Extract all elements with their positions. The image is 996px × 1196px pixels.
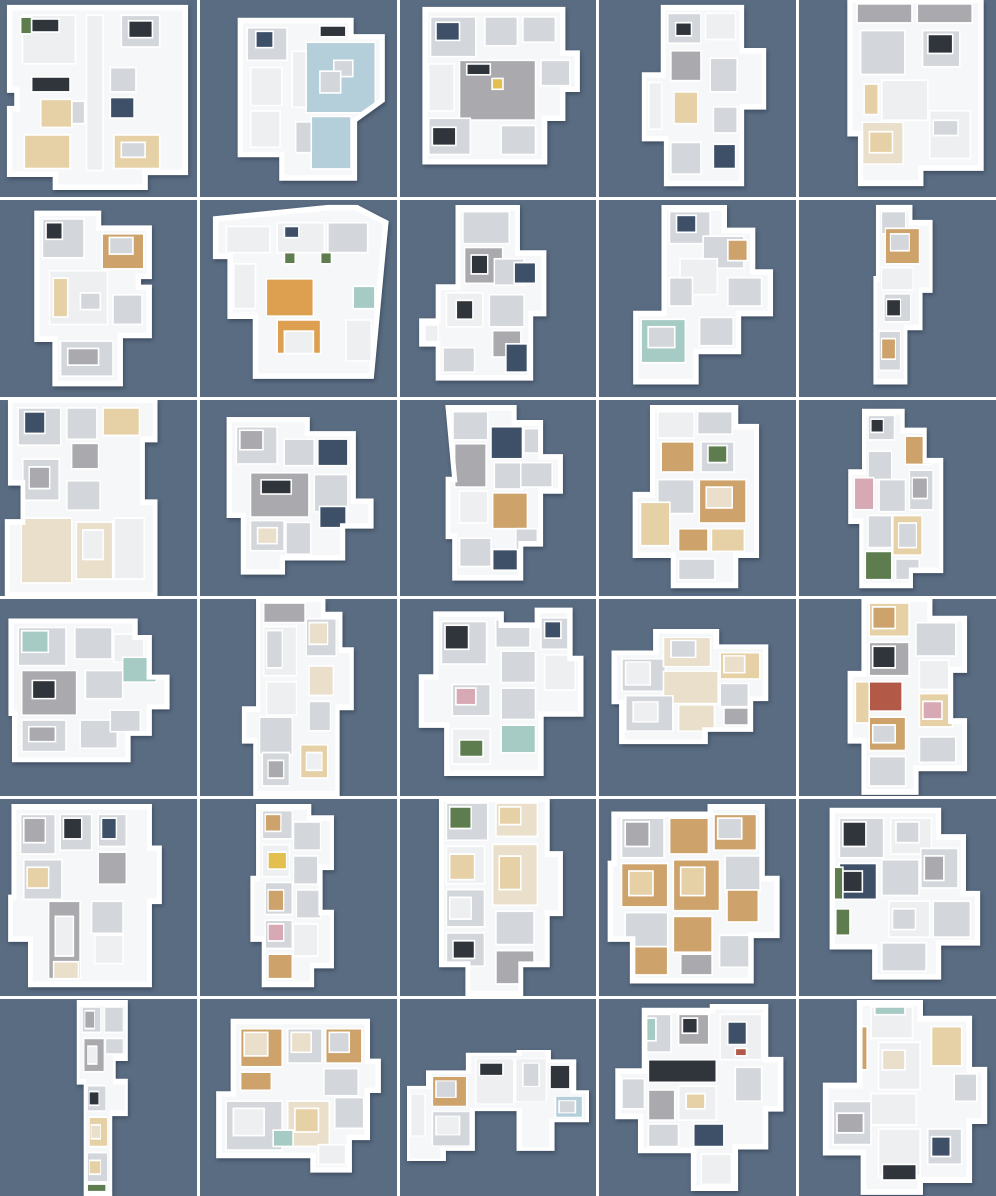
grid-cell-r4c2 — [200, 599, 397, 796]
floorplan-image-r6c5 — [803, 999, 992, 1196]
grid-cell-r3c5 — [799, 400, 996, 597]
grid-cell-r1c5 — [799, 0, 996, 197]
grid-cell-r6c2 — [200, 999, 397, 1196]
floorplan-image-r6c1 — [59, 999, 146, 1196]
grid-cell-r1c1 — [0, 0, 197, 197]
grid-cell-r2c5 — [799, 200, 996, 397]
grid-cell-r6c3 — [400, 999, 597, 1196]
floorplan-image-r3c5 — [831, 404, 969, 593]
floorplan-thumbnail-r3c2[interactable] — [208, 409, 385, 586]
grid-cell-r6c4 — [599, 999, 796, 1196]
floorplan-image-r6c4 — [603, 1003, 792, 1192]
floorplan-image-r5c1 — [4, 803, 169, 992]
floorplan-image-r3c2 — [208, 409, 385, 586]
floorplan-thumbnail-r2c3[interactable] — [415, 204, 580, 393]
floorplan-thumbnail-r2c4[interactable] — [611, 204, 788, 393]
floorplan-image-r4c5 — [819, 599, 992, 796]
grid-cell-r4c5 — [799, 599, 996, 796]
floorplan-image-r4c4 — [603, 619, 792, 773]
floorplan-thumbnail-r1c5[interactable] — [811, 0, 988, 191]
floorplan-thumbnail-r6c2[interactable] — [208, 1007, 389, 1188]
floorplan-thumbnail-r1c1[interactable] — [6, 4, 189, 191]
grid-cell-r1c3 — [400, 0, 597, 197]
floorplan-image-r4c2 — [227, 599, 369, 796]
grid-cell-r2c4 — [599, 200, 796, 397]
floorplan-image-r3c1 — [4, 400, 161, 597]
floorplan-image-r2c4 — [611, 204, 788, 393]
floorplan-thumbnail-r5c5[interactable] — [811, 803, 988, 992]
grid-cell-r4c4 — [599, 599, 796, 796]
grid-cell-r5c2 — [200, 799, 397, 996]
floorplan-image-r3c3 — [415, 404, 580, 593]
grid-cell-r4c1 — [0, 599, 197, 796]
grid-cell-r5c1 — [0, 799, 197, 996]
floorplan-thumbnail-r5c2[interactable] — [227, 803, 369, 992]
grid-cell-r2c3 — [400, 200, 597, 397]
grid-cell-r6c5 — [799, 999, 996, 1196]
floorplan-image-r4c3 — [407, 603, 588, 788]
floorplan-image-r2c3 — [415, 204, 580, 393]
floorplan-image-r2c2 — [212, 204, 393, 391]
grid-cell-r6c1 — [0, 999, 197, 1196]
floorplan-thumbnail-r6c3[interactable] — [407, 1050, 588, 1160]
floorplan-image-r5c3 — [415, 799, 580, 996]
floorplan-thumbnail-r5c1[interactable] — [4, 803, 169, 992]
floorplan-thumbnail-r3c5[interactable] — [831, 404, 969, 593]
grid-cell-r1c4 — [599, 0, 796, 197]
grid-cell-r2c2 — [200, 200, 397, 397]
floorplan-thumbnail-r6c4[interactable] — [603, 1003, 792, 1192]
floorplan-grid — [0, 0, 996, 1196]
floorplan-thumbnail-r2c2[interactable] — [212, 204, 393, 391]
floorplan-thumbnail-r2c5[interactable] — [835, 204, 961, 391]
floorplan-thumbnail-r5c4[interactable] — [603, 803, 788, 992]
grid-cell-r5c4 — [599, 799, 796, 996]
floorplan-image-r6c2 — [208, 1007, 389, 1188]
floorplan-image-r5c5 — [811, 803, 988, 992]
floorplan-thumbnail-r1c3[interactable] — [407, 6, 588, 187]
floorplan-thumbnail-r2c1[interactable] — [8, 206, 189, 391]
floorplan-image-r5c2 — [227, 803, 369, 992]
floorplan-image-r3c4 — [611, 404, 784, 593]
floorplan-thumbnail-r4c4[interactable] — [603, 619, 792, 773]
floorplan-image-r1c3 — [407, 6, 588, 187]
floorplan-thumbnail-r5c3[interactable] — [415, 799, 580, 996]
floorplan-thumbnail-r4c3[interactable] — [407, 603, 588, 788]
floorplan-thumbnail-r4c1[interactable] — [4, 611, 181, 776]
grid-cell-r3c4 — [599, 400, 796, 597]
floorplan-image-r4c1 — [4, 611, 181, 776]
grid-cell-r3c1 — [0, 400, 197, 597]
floorplan-thumbnail-r6c5[interactable] — [803, 999, 992, 1196]
grid-cell-r3c2 — [200, 400, 397, 597]
floorplan-thumbnail-r3c1[interactable] — [4, 400, 161, 597]
floorplan-image-r1c1 — [6, 4, 189, 191]
grid-cell-r5c5 — [799, 799, 996, 996]
floorplan-image-r6c3 — [407, 1050, 588, 1160]
floorplan-image-r2c1 — [8, 206, 189, 391]
floorplan-thumbnail-r3c3[interactable] — [415, 404, 580, 593]
floorplan-image-r2c5 — [835, 204, 961, 391]
floorplan-image-r1c5 — [811, 0, 988, 191]
floorplan-thumbnail-r3c4[interactable] — [611, 404, 784, 593]
floorplan-thumbnail-r4c2[interactable] — [227, 599, 369, 796]
floorplan-thumbnail-r1c4[interactable] — [619, 4, 776, 191]
floorplan-image-r1c2 — [216, 6, 389, 187]
grid-cell-r5c3 — [400, 799, 597, 996]
floorplan-thumbnail-r4c5[interactable] — [819, 599, 992, 796]
grid-cell-r1c2 — [200, 0, 397, 197]
grid-cell-r4c3 — [400, 599, 597, 796]
grid-cell-r3c3 — [400, 400, 597, 597]
grid-cell-r2c1 — [0, 200, 197, 397]
floorplan-thumbnail-r6c1[interactable] — [59, 999, 146, 1196]
floorplan-image-r5c4 — [603, 803, 788, 992]
floorplan-thumbnail-r1c2[interactable] — [216, 6, 389, 187]
floorplan-image-r1c4 — [619, 4, 776, 191]
